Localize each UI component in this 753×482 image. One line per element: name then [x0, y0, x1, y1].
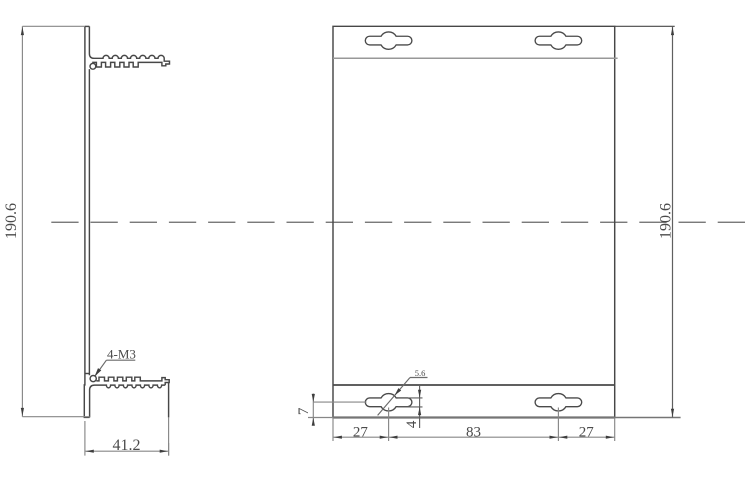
svg-text:83: 83 — [466, 424, 481, 440]
svg-text:4-M3: 4-M3 — [107, 346, 136, 361]
svg-text:190.6: 190.6 — [658, 203, 675, 239]
svg-text:4: 4 — [404, 420, 420, 428]
svg-text:27: 27 — [353, 424, 369, 440]
svg-text:7: 7 — [296, 407, 312, 415]
svg-text:5.6: 5.6 — [415, 368, 426, 378]
svg-text:41.2: 41.2 — [113, 437, 141, 454]
svg-text:190.6: 190.6 — [3, 203, 20, 239]
svg-text:27: 27 — [579, 424, 595, 440]
